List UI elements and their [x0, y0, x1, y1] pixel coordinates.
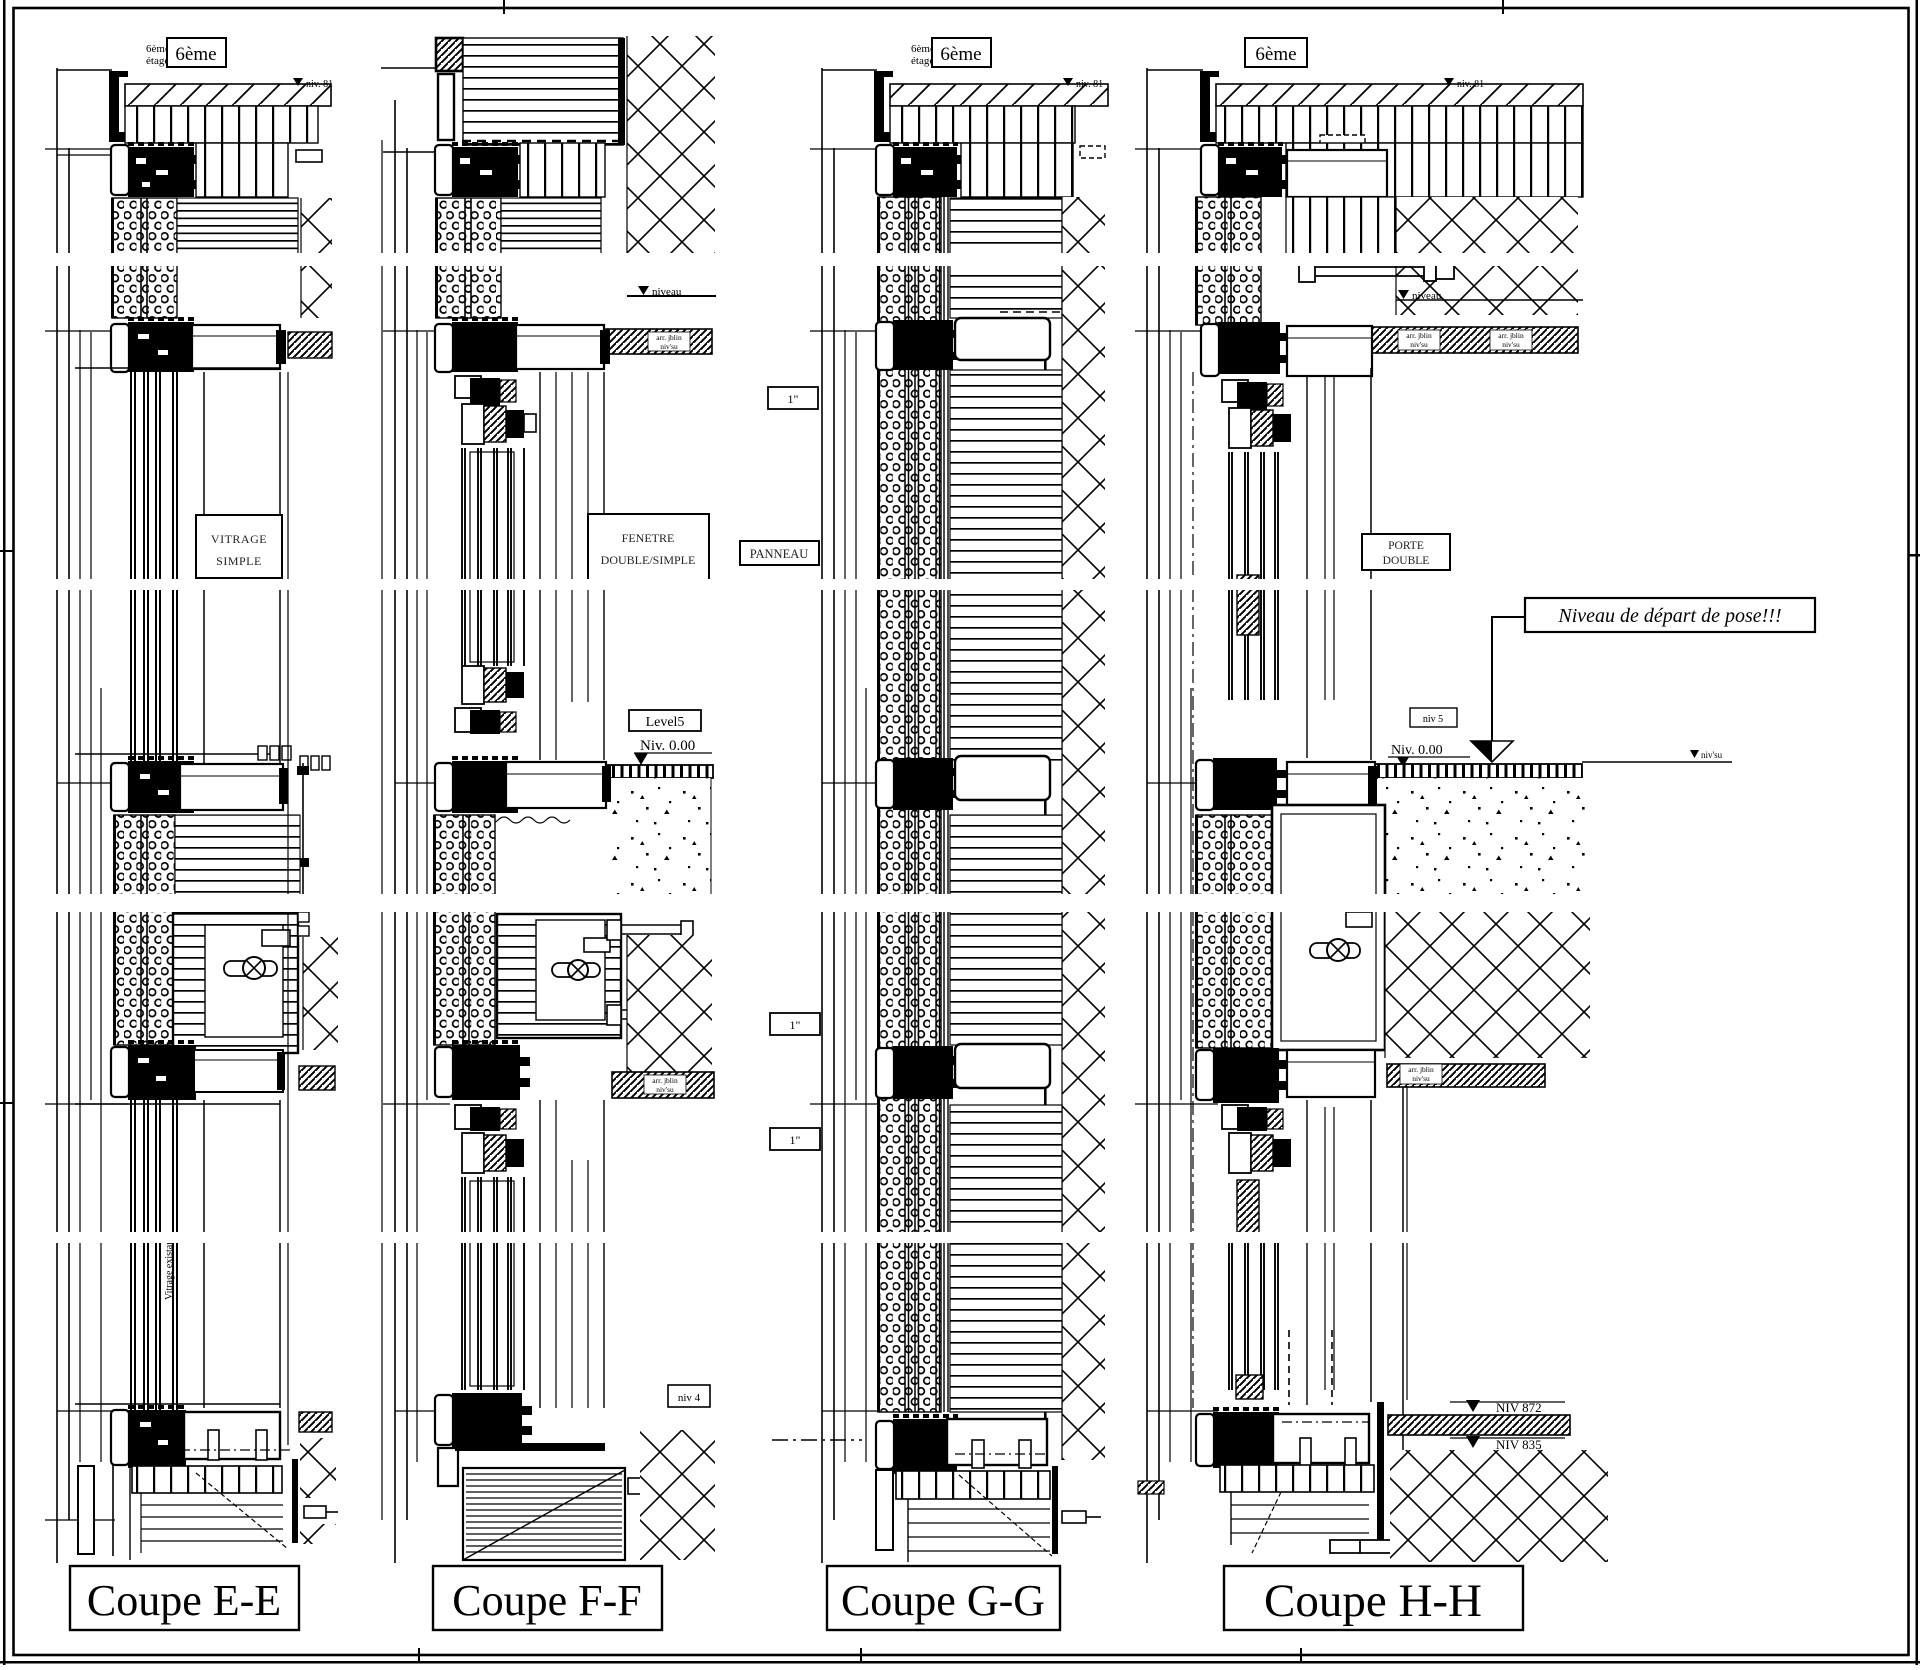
svg-text:1": 1" — [788, 392, 799, 406]
svg-text:Niveau de départ de pose!!!: Niveau de départ de pose!!! — [1557, 605, 1781, 627]
svg-text:niv. 81: niv. 81 — [1457, 79, 1484, 90]
svg-text:niv'su: niv'su — [1410, 340, 1428, 349]
svg-text:Coupe H-H: Coupe H-H — [1264, 1575, 1482, 1627]
svg-text:arr. jblin: arr. jblin — [652, 1076, 678, 1085]
svg-text:6ème: 6ème — [1255, 44, 1296, 65]
svg-text:Coupe E-E: Coupe E-E — [87, 1576, 281, 1625]
svg-text:1": 1" — [790, 1018, 801, 1032]
svg-text:niv'su: niv'su — [1701, 750, 1723, 760]
svg-text:niv. 81: niv. 81 — [1076, 79, 1103, 90]
svg-text:niv'su: niv'su — [1502, 340, 1520, 349]
svg-text:NIV 835: NIV 835 — [1496, 1437, 1542, 1452]
svg-text:arr. jblin: arr. jblin — [1408, 1065, 1434, 1074]
svg-text:6ème: 6ème — [940, 44, 981, 65]
svg-text:étage: étage — [911, 55, 934, 67]
svg-text:niv'su: niv'su — [660, 342, 678, 351]
svg-text:Niv. 0.00: Niv. 0.00 — [640, 738, 695, 754]
svg-text:PORTE: PORTE — [1388, 540, 1424, 552]
svg-text:niveau: niveau — [652, 286, 682, 298]
svg-text:niv'su: niv'su — [1412, 1074, 1430, 1083]
svg-text:PANNEAU: PANNEAU — [750, 547, 809, 561]
svg-text:DOUBLE/SIMPLE: DOUBLE/SIMPLE — [601, 553, 696, 567]
svg-text:arr. jblin: arr. jblin — [656, 333, 682, 342]
svg-text:Level5: Level5 — [646, 715, 685, 730]
svg-text:VITRAGE: VITRAGE — [211, 532, 267, 546]
svg-text:6ème: 6ème — [175, 44, 216, 65]
svg-text:niv 4: niv 4 — [678, 1392, 701, 1404]
svg-text:arr. jblin: arr. jblin — [1406, 331, 1432, 340]
svg-text:1": 1" — [790, 1133, 801, 1147]
svg-text:FENETRE: FENETRE — [622, 531, 675, 545]
svg-text:Vitrage existant: Vitrage existant — [164, 1237, 175, 1300]
svg-text:Coupe G-G: Coupe G-G — [841, 1576, 1045, 1625]
svg-text:arr. jblin: arr. jblin — [1498, 331, 1524, 340]
svg-text:niv'su: niv'su — [656, 1085, 674, 1094]
svg-text:SIMPLE: SIMPLE — [216, 554, 262, 568]
svg-text:niv. 81: niv. 81 — [306, 79, 333, 90]
svg-text:étage: étage — [146, 55, 169, 67]
svg-text:niv 5: niv 5 — [1423, 714, 1443, 725]
svg-text:DOUBLE: DOUBLE — [1383, 555, 1430, 567]
svg-text:Coupe F-F: Coupe F-F — [452, 1576, 641, 1625]
svg-text:Niv. 0.00: Niv. 0.00 — [1391, 743, 1443, 758]
